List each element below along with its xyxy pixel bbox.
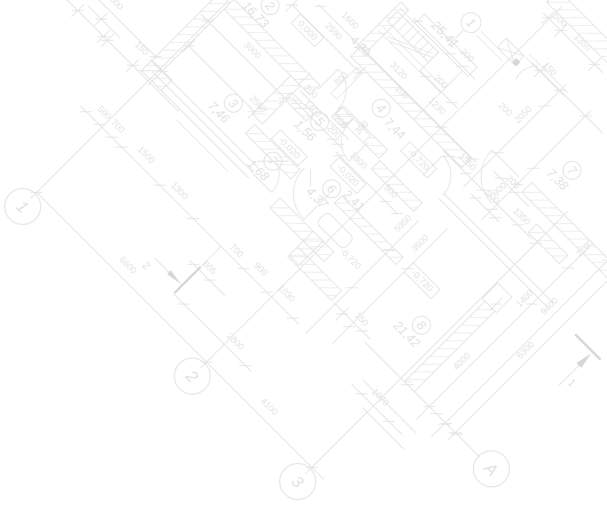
svg-text:1400: 1400 [514,288,535,309]
svg-text:500: 500 [382,182,400,200]
svg-text:1800: 1800 [348,150,369,171]
svg-text:900: 900 [252,260,270,278]
svg-text:6300: 6300 [515,339,536,360]
svg-text:4: 4 [373,100,389,116]
svg-text:2600: 2600 [104,0,125,12]
svg-text:1500: 1500 [136,144,157,165]
svg-text:150: 150 [133,40,151,58]
svg-text:25,41: 25,41 [428,17,462,51]
svg-text:6600: 6600 [117,255,138,276]
svg-text:200: 200 [393,83,411,101]
svg-text:3: 3 [287,472,308,493]
svg-text:1300: 1300 [169,180,190,201]
svg-text:-0,720: -0,720 [338,246,363,271]
svg-text:7: 7 [564,163,580,179]
svg-text:6: 6 [324,181,340,197]
svg-text:5950: 5950 [392,213,413,234]
svg-text:7,44: 7,44 [381,115,408,142]
svg-text:1: 1 [12,197,32,217]
svg-text:1350: 1350 [572,32,593,53]
svg-text:200: 200 [496,100,514,118]
svg-text:2050: 2050 [513,104,534,125]
svg-text:3120: 3120 [388,60,409,81]
svg-text:1: 1 [463,15,479,31]
svg-text:3: 3 [225,95,241,111]
svg-text:2: 2 [139,260,152,273]
svg-text:2800: 2800 [225,331,246,352]
svg-text:4100: 4100 [259,396,280,417]
svg-text:3600: 3600 [409,233,430,254]
svg-text:1350: 1350 [457,151,478,172]
svg-text:9400: 9400 [539,296,560,317]
svg-text:-0,720: -0,720 [408,268,435,295]
svg-text:1350: 1350 [511,206,532,227]
svg-text:1230: 1230 [426,95,447,116]
svg-text:4000: 4000 [451,351,472,372]
svg-text:200: 200 [458,47,476,65]
svg-text:200: 200 [302,83,320,101]
svg-text:3000: 3000 [242,40,263,61]
svg-text:1600: 1600 [339,10,360,31]
svg-text:700: 700 [228,242,246,260]
svg-text:1: 1 [565,377,578,390]
svg-text:150: 150 [353,310,371,328]
svg-text:1030: 1030 [276,283,297,304]
svg-text:200: 200 [432,73,450,91]
svg-text:8: 8 [414,317,430,333]
svg-text:700: 700 [109,117,127,135]
svg-text:2: 2 [181,366,202,387]
svg-text:2590: 2590 [323,21,344,42]
svg-text:A: A [480,458,502,480]
